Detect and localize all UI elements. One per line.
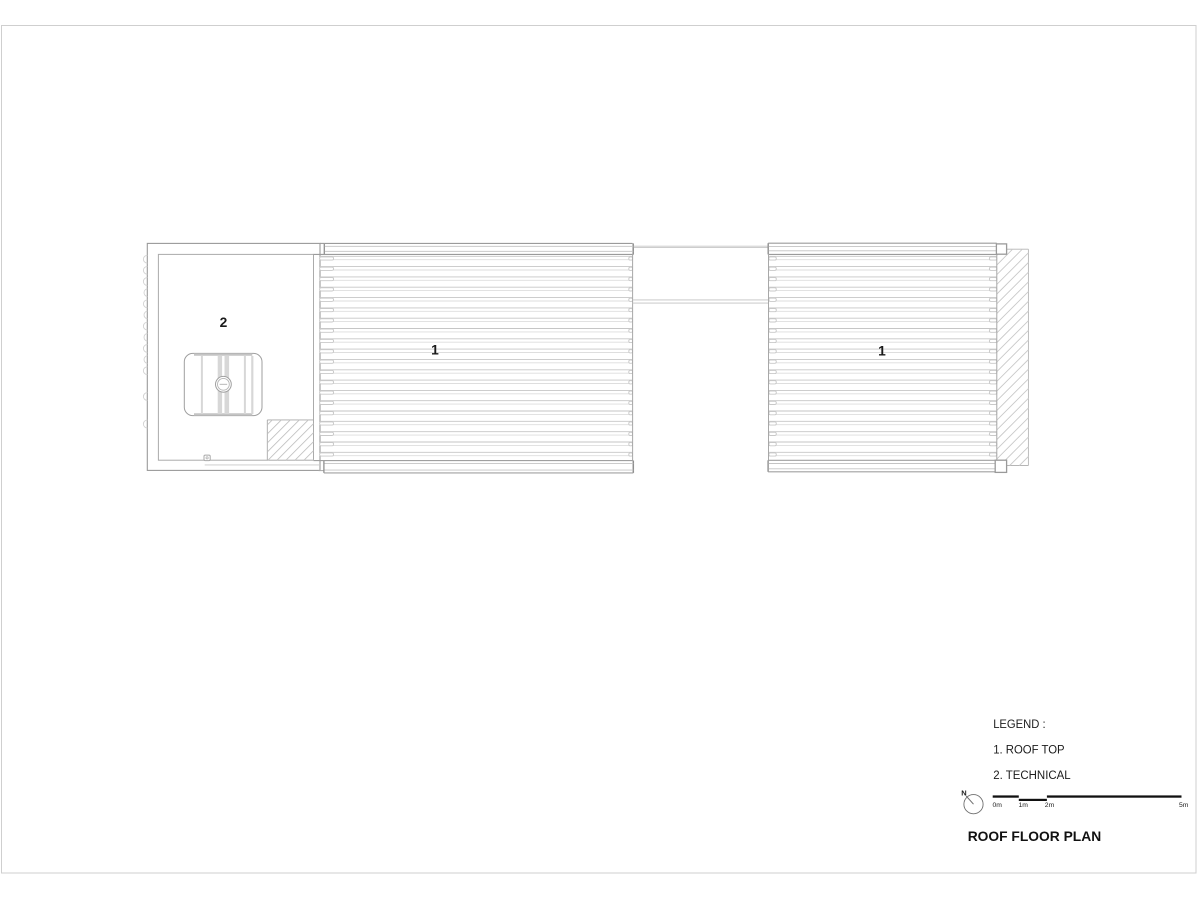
svg-text:0m: 0m [993,802,1003,809]
svg-text:N: N [961,788,966,797]
svg-text:2m: 2m [1045,802,1055,809]
svg-text:5m: 5m [1179,802,1189,809]
svg-text:1: 1 [431,342,439,357]
svg-text:ROOF FLOOR PLAN: ROOF FLOOR PLAN [968,829,1102,844]
svg-text:1: 1 [878,343,886,358]
svg-text:2: 2 [220,315,228,330]
svg-text:1. ROOF TOP: 1. ROOF TOP [993,743,1064,757]
svg-text:LEGEND :: LEGEND : [993,717,1045,731]
svg-text:1m: 1m [1019,802,1029,809]
svg-text:2. TECHNICAL: 2. TECHNICAL [993,768,1071,782]
